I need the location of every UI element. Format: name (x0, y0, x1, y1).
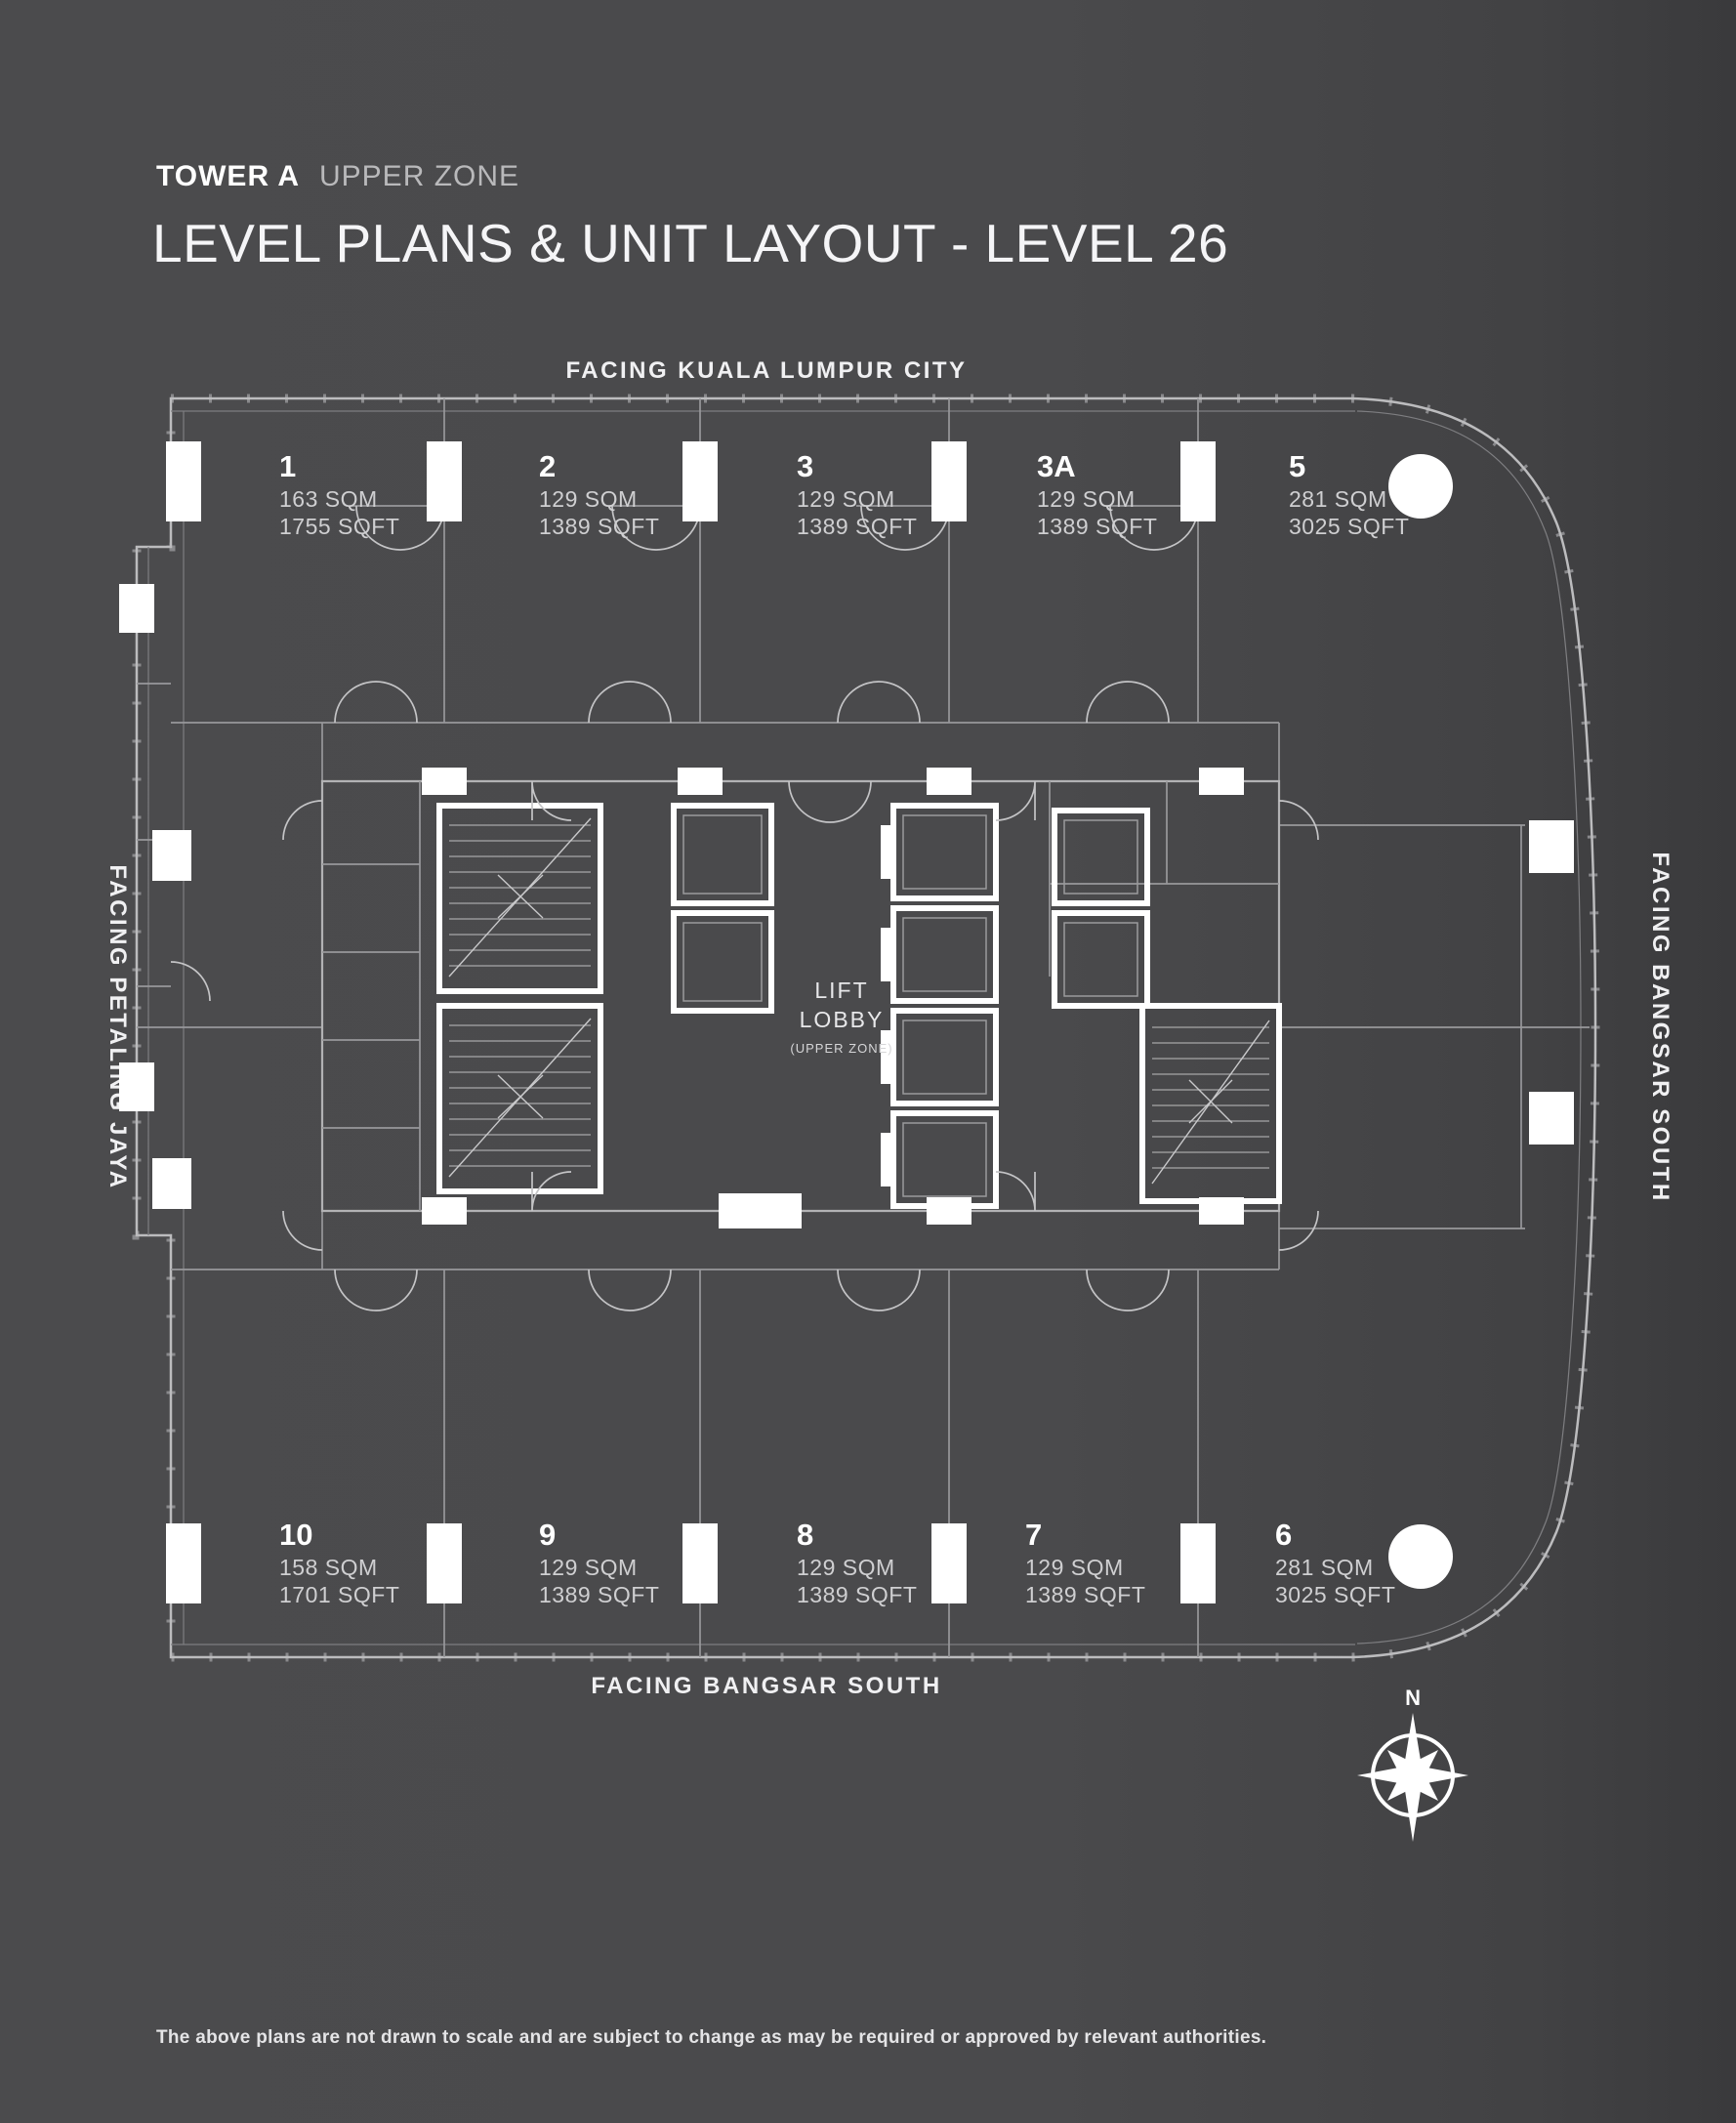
svg-text:3025 SQFT: 3025 SQFT (1289, 514, 1409, 539)
svg-text:129 SQM: 129 SQM (797, 1555, 895, 1580)
svg-text:1: 1 (279, 449, 296, 483)
unit-label: 6 281 SQM 3025 SQFT (1275, 1518, 1395, 1607)
facing-label-bottom: FACING BANGSAR SOUTH (591, 1673, 941, 1699)
brochure-page: TOWER A UPPER ZONE LEVEL PLANS & UNIT LA… (0, 0, 1736, 2123)
svg-text:9: 9 (539, 1518, 556, 1552)
svg-text:3: 3 (797, 449, 813, 483)
svg-text:LIFT: LIFT (814, 978, 868, 1003)
svg-text:158 SQM: 158 SQM (279, 1555, 378, 1580)
facing-label-right: FACING BANGSAR SOUTH (1647, 852, 1674, 1202)
lift-bank-center (881, 806, 996, 1206)
zone-label: UPPER ZONE (319, 160, 519, 192)
door-arcs (171, 506, 1318, 1311)
svg-text:129 SQM: 129 SQM (1025, 1555, 1124, 1580)
svg-text:129 SQM: 129 SQM (539, 486, 638, 512)
tower-label: TOWER A (156, 160, 300, 192)
unit-label: 8 129 SQM 1389 SQFT (797, 1518, 917, 1607)
svg-text:3025 SQFT: 3025 SQFT (1275, 1582, 1395, 1607)
svg-text:1389 SQFT: 1389 SQFT (1037, 514, 1157, 539)
svg-text:7: 7 (1025, 1518, 1042, 1552)
svg-text:3A: 3A (1037, 449, 1076, 483)
svg-text:6: 6 (1275, 1518, 1292, 1552)
facing-label-top: FACING KUALA LUMPUR CITY (565, 357, 967, 384)
lobby-opening (719, 1193, 802, 1228)
svg-text:5: 5 (1289, 449, 1305, 483)
svg-text:129 SQM: 129 SQM (1037, 486, 1136, 512)
unit-label: 3 129 SQM 1389 SQFT (797, 449, 917, 539)
page-title: LEVEL PLANS & UNIT LAYOUT - LEVEL 26 (152, 213, 1228, 273)
svg-text:1389 SQFT: 1389 SQFT (1025, 1582, 1145, 1607)
round-column (1388, 454, 1453, 519)
unit-label: 3A 129 SQM 1389 SQFT (1037, 449, 1157, 539)
svg-text:10: 10 (279, 1518, 312, 1552)
svg-text:281 SQM: 281 SQM (1289, 486, 1387, 512)
stairwell (439, 1006, 600, 1191)
stairwell (439, 806, 600, 991)
compass-north-label: N (1405, 1686, 1421, 1710)
svg-text:LOBBY: LOBBY (800, 1007, 885, 1032)
lift-bank-left (674, 806, 771, 1011)
floor-plan: LIFT LOBBY (UPPER ZONE) (119, 398, 1595, 1657)
lift-bank-right (1054, 811, 1147, 1006)
disclaimer-text: The above plans are not drawn to scale a… (156, 2027, 1266, 2048)
compass-rose: N (1357, 1686, 1468, 1842)
unit-label: 2 129 SQM 1389 SQFT (539, 449, 659, 539)
svg-text:1389 SQFT: 1389 SQFT (539, 514, 659, 539)
round-column (1388, 1524, 1453, 1589)
unit-label: 1 163 SQM 1755 SQFT (279, 449, 399, 539)
svg-text:1701 SQFT: 1701 SQFT (279, 1582, 399, 1607)
svg-text:1389 SQFT: 1389 SQFT (797, 514, 917, 539)
svg-text:129 SQM: 129 SQM (797, 486, 895, 512)
facing-label-left: FACING PETALING JAYA (104, 864, 131, 1189)
stairwell (1142, 1006, 1279, 1201)
unit-label: 7 129 SQM 1389 SQFT (1025, 1518, 1145, 1607)
svg-text:1389 SQFT: 1389 SQFT (797, 1582, 917, 1607)
unit-label: 9 129 SQM 1389 SQFT (539, 1518, 659, 1607)
svg-text:163 SQM: 163 SQM (279, 486, 378, 512)
unit-label: 10 158 SQM 1701 SQFT (279, 1518, 399, 1607)
svg-text:281 SQM: 281 SQM (1275, 1555, 1374, 1580)
page-header: TOWER A UPPER ZONE LEVEL PLANS & UNIT LA… (152, 160, 1228, 273)
svg-text:1389 SQFT: 1389 SQFT (539, 1582, 659, 1607)
svg-text:(UPPER ZONE): (UPPER ZONE) (790, 1041, 892, 1056)
svg-text:1755 SQFT: 1755 SQFT (279, 514, 399, 539)
service-core: LIFT LOBBY (UPPER ZONE) (322, 781, 1279, 1211)
compass-star (1357, 1713, 1468, 1842)
lift-lobby-label: LIFT LOBBY (UPPER ZONE) (790, 978, 892, 1056)
svg-text:2: 2 (539, 449, 556, 483)
svg-text:8: 8 (797, 1518, 813, 1552)
svg-text:129 SQM: 129 SQM (539, 1555, 638, 1580)
